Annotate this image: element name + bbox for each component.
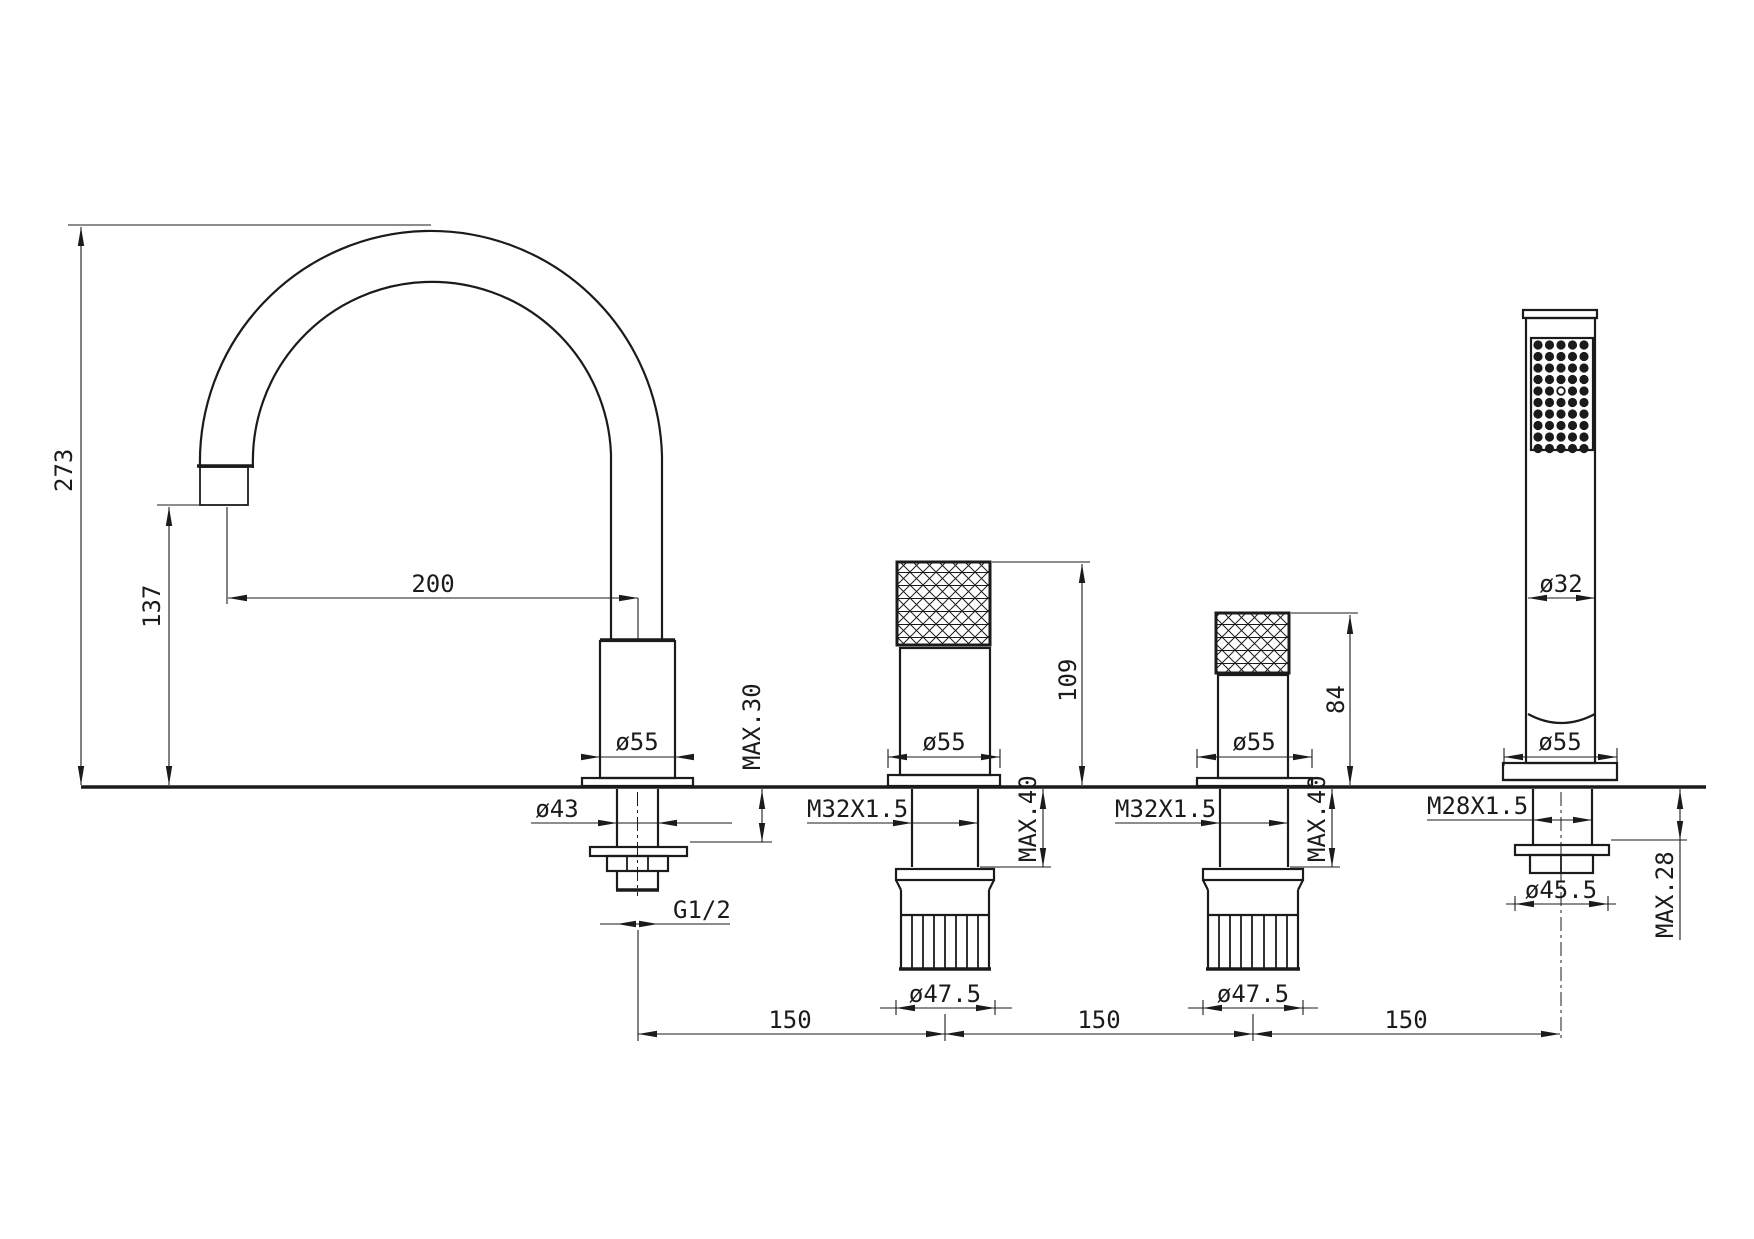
spacing-dimensions: 150 150 150	[638, 930, 1560, 1041]
spray-hole	[1545, 386, 1554, 395]
dim-spout-thread: G1/2	[673, 896, 731, 924]
spout-base-flange	[582, 778, 693, 786]
handle1-outline	[888, 562, 1000, 969]
spray-hole	[1579, 352, 1588, 361]
dim-spacing-3: 150	[1384, 1006, 1427, 1034]
dim-shower-handle-dia: ø32	[1539, 570, 1582, 598]
hand-shower-cap	[1523, 310, 1597, 318]
hand-shower-body	[1526, 318, 1595, 763]
handle1-flange	[888, 775, 1000, 786]
spray-hole-grid	[1533, 340, 1588, 453]
spray-hole	[1556, 352, 1565, 361]
spray-hole	[1579, 363, 1588, 372]
handle2-outline	[1197, 613, 1312, 969]
spray-hole	[1545, 409, 1554, 418]
dim-handle1-nut-dia: ø47.5	[909, 980, 981, 1008]
dim-handle1-dia: ø55	[922, 728, 965, 756]
spray-hole	[1533, 398, 1542, 407]
handle2-mount-taper	[1203, 880, 1208, 890]
spray-hole	[1579, 409, 1588, 418]
spray-hole	[1568, 340, 1577, 349]
dim-handle2-dia: ø55	[1232, 728, 1275, 756]
spray-hole	[1533, 409, 1542, 418]
dim-shower-nut-dia: ø45.5	[1525, 876, 1597, 904]
handle1-mount-ribs	[912, 915, 978, 968]
spray-hole-open	[1557, 387, 1565, 395]
spray-hole	[1556, 340, 1565, 349]
spray-hole	[1556, 398, 1565, 407]
dim-handle2-max-deck: MAX.40	[1303, 775, 1331, 862]
spray-hole	[1568, 375, 1577, 384]
spray-hole	[1579, 386, 1588, 395]
spray-hole	[1545, 375, 1554, 384]
handle2-mount-plate	[1203, 869, 1303, 880]
spray-hole	[1568, 409, 1577, 418]
handle1-mount-plate	[896, 869, 994, 880]
spray-hole	[1533, 352, 1542, 361]
spout-dimensions: 273 137 200 ø55 ø43 G1/2 MAX.30	[50, 225, 772, 927]
technical-drawing-page: 273 137 200 ø55 ø43 G1/2 MAX.30	[0, 0, 1754, 1239]
spray-hole	[1545, 340, 1554, 349]
spray-hole	[1545, 398, 1554, 407]
handle1-knurled-knob	[897, 562, 990, 645]
dim-handle1-height: 109	[1054, 659, 1082, 702]
dim-spout-height: 273	[50, 449, 78, 492]
handle2-flange	[1197, 778, 1312, 786]
handle1-mount-taper	[989, 880, 994, 890]
aerator	[200, 467, 248, 505]
dim-spacing-1: 150	[768, 1006, 811, 1034]
spray-hole	[1556, 409, 1565, 418]
spray-hole	[1556, 375, 1565, 384]
hand-shower-escutcheon	[1503, 763, 1617, 780]
dim-shower-max-deck: MAX.28	[1651, 851, 1679, 938]
spray-hole	[1533, 386, 1542, 395]
hand-shower-holder-joint	[1528, 714, 1595, 723]
hand-shower-dimensions: ø32 ø55 M28X1.5 ø45.5 MAX.28	[1427, 570, 1687, 940]
dim-spout-max-deck: MAX.30	[738, 683, 766, 770]
spray-hole	[1545, 444, 1554, 453]
dim-handle2-height: 84	[1322, 685, 1350, 714]
spray-hole	[1579, 375, 1588, 384]
handle2-mount-taper	[1298, 880, 1303, 890]
hand-shower-outline	[1503, 310, 1617, 1041]
dim-spacing-2: 150	[1077, 1006, 1120, 1034]
spray-hole	[1556, 432, 1565, 441]
spray-hole	[1579, 340, 1588, 349]
handle2-body	[1218, 675, 1288, 778]
spray-hole	[1533, 432, 1542, 441]
spray-hole	[1568, 386, 1577, 395]
spray-hole	[1568, 432, 1577, 441]
handle2-mount-ribs	[1219, 915, 1287, 968]
dim-handle1-thread: M32X1.5	[807, 795, 908, 823]
spray-hole	[1568, 398, 1577, 407]
spray-hole	[1533, 375, 1542, 384]
dim-shower-thread: M28X1.5	[1427, 792, 1528, 820]
spray-hole	[1533, 363, 1542, 372]
spray-hole	[1533, 340, 1542, 349]
spray-hole	[1579, 421, 1588, 430]
spray-hole	[1545, 352, 1554, 361]
dim-handle1-max-deck: MAX.40	[1014, 775, 1042, 862]
spray-hole	[1568, 363, 1577, 372]
dim-handle2-nut-dia: ø47.5	[1217, 980, 1289, 1008]
spray-hole	[1556, 421, 1565, 430]
spray-hole	[1533, 444, 1542, 453]
spray-hole	[1568, 444, 1577, 453]
spray-hole	[1545, 421, 1554, 430]
dim-spout-base-dia: ø55	[615, 728, 658, 756]
handle2-knurled-knob	[1216, 613, 1289, 673]
handle1-mount-taper	[896, 880, 901, 890]
spout-outline	[197, 231, 693, 896]
dim-spout-shank-dia: ø43	[535, 795, 578, 823]
dim-handle2-thread: M32X1.5	[1115, 795, 1216, 823]
spray-hole	[1579, 444, 1588, 453]
spray-hole	[1568, 421, 1577, 430]
spray-hole	[1568, 352, 1577, 361]
spout-washer	[590, 847, 687, 856]
spray-hole	[1556, 444, 1565, 453]
spray-hole	[1556, 363, 1565, 372]
bath-mixer-dimension-drawing: 273 137 200 ø55 ø43 G1/2 MAX.30	[0, 0, 1754, 1239]
spray-hole	[1545, 432, 1554, 441]
spray-hole	[1579, 398, 1588, 407]
dim-spout-outlet-height: 137	[138, 585, 166, 628]
spray-hole	[1533, 421, 1542, 430]
spray-hole	[1545, 363, 1554, 372]
dim-spout-reach: 200	[411, 570, 454, 598]
dim-shower-base-dia: ø55	[1538, 728, 1581, 756]
hand-shower-washer	[1515, 845, 1609, 855]
spray-hole	[1579, 432, 1588, 441]
